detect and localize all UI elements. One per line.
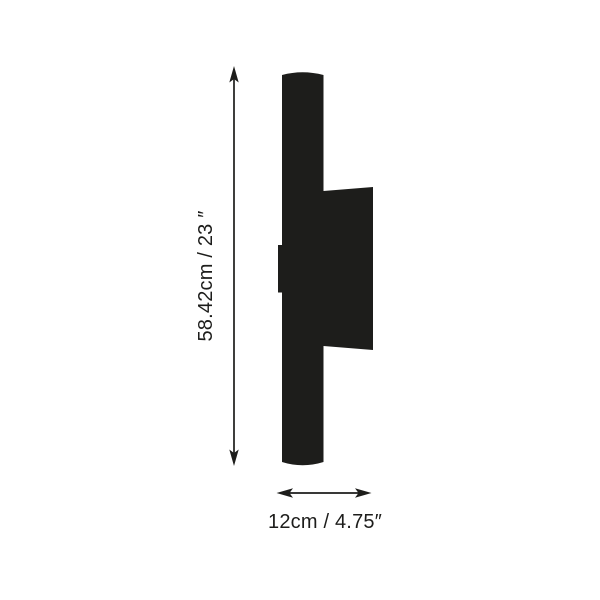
height-dimension-label: 58.42cm / 23 ″ xyxy=(195,210,217,341)
width-dimension-arrow xyxy=(277,488,372,497)
diagram-svg xyxy=(0,0,600,600)
height-dimension-arrow xyxy=(229,66,238,466)
width-dimension-label: 12cm / 4.75″ xyxy=(268,511,382,533)
fixture-silhouette xyxy=(278,72,373,465)
product-dimension-diagram: 58.42cm / 23 ″ 12cm / 4.75″ xyxy=(0,0,600,600)
